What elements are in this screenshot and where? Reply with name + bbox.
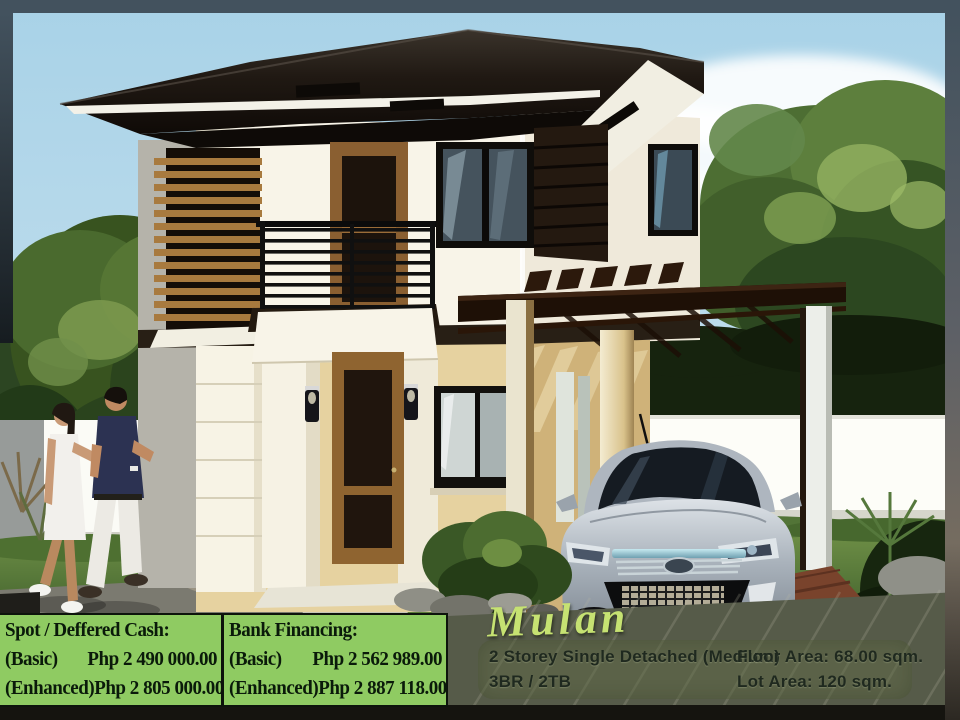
panel-bank-financing: Bank Financing: (Basic) Php 2 562 989.00… <box>224 615 446 705</box>
panel-spot-deffered-cash: Spot / Deffered Cash: (Basic) Php 2 490 … <box>0 615 221 705</box>
car-grille-bar <box>612 549 746 558</box>
photo-frame-right <box>945 13 960 720</box>
model-name: Mulan <box>486 592 630 648</box>
wall-lamp-right <box>404 384 418 420</box>
road-bottom-band <box>0 705 960 720</box>
model-lot-area: Lot Area: 120 sqm. <box>737 672 892 692</box>
photo-frame-left <box>0 13 13 343</box>
car-emblem <box>664 558 694 574</box>
price-row: (Basic) Php 2 490 000.00 <box>5 645 217 674</box>
price-value: Php 2 562 989.00 <box>312 645 442 674</box>
model-floor-area: Floor Area: 68.00 sqm. <box>737 647 923 667</box>
photo-frame-top <box>0 0 960 13</box>
price-heading: Bank Financing: <box>229 616 442 645</box>
price-row: (Basic) Php 2 562 989.00 <box>229 645 442 674</box>
wall-lamp-left <box>305 386 319 422</box>
advertisement-image: Spot / Deffered Cash: (Basic) Php 2 490 … <box>0 0 960 720</box>
entrance-door <box>332 352 404 564</box>
right-wing-window <box>648 144 698 236</box>
price-value: Php 2 490 000.00 <box>87 645 217 674</box>
dark-siding-panel <box>534 124 608 262</box>
price-value: Php 2 805 000.00 <box>94 674 221 703</box>
price-row: (Enhanced) Php 2 887 118.00 <box>229 674 442 703</box>
model-rooms: 3BR / 2TB <box>489 672 571 692</box>
scored-column <box>196 346 266 592</box>
corner-window <box>436 142 534 248</box>
price-label: (Basic) <box>5 645 58 674</box>
house-rendering-scene <box>0 0 960 720</box>
pricing-banner: Spot / Deffered Cash: (Basic) Php 2 490 … <box>0 613 448 707</box>
pergola-post-right <box>800 306 832 570</box>
price-value: Php 2 887 118.00 <box>318 674 446 703</box>
price-heading: Spot / Deffered Cash: <box>5 616 217 645</box>
price-label: (Enhanced) <box>5 674 94 703</box>
price-label: (Basic) <box>229 645 282 674</box>
price-row: (Enhanced) Php 2 805 000.00 <box>5 674 217 703</box>
price-label: (Enhanced) <box>229 674 318 703</box>
